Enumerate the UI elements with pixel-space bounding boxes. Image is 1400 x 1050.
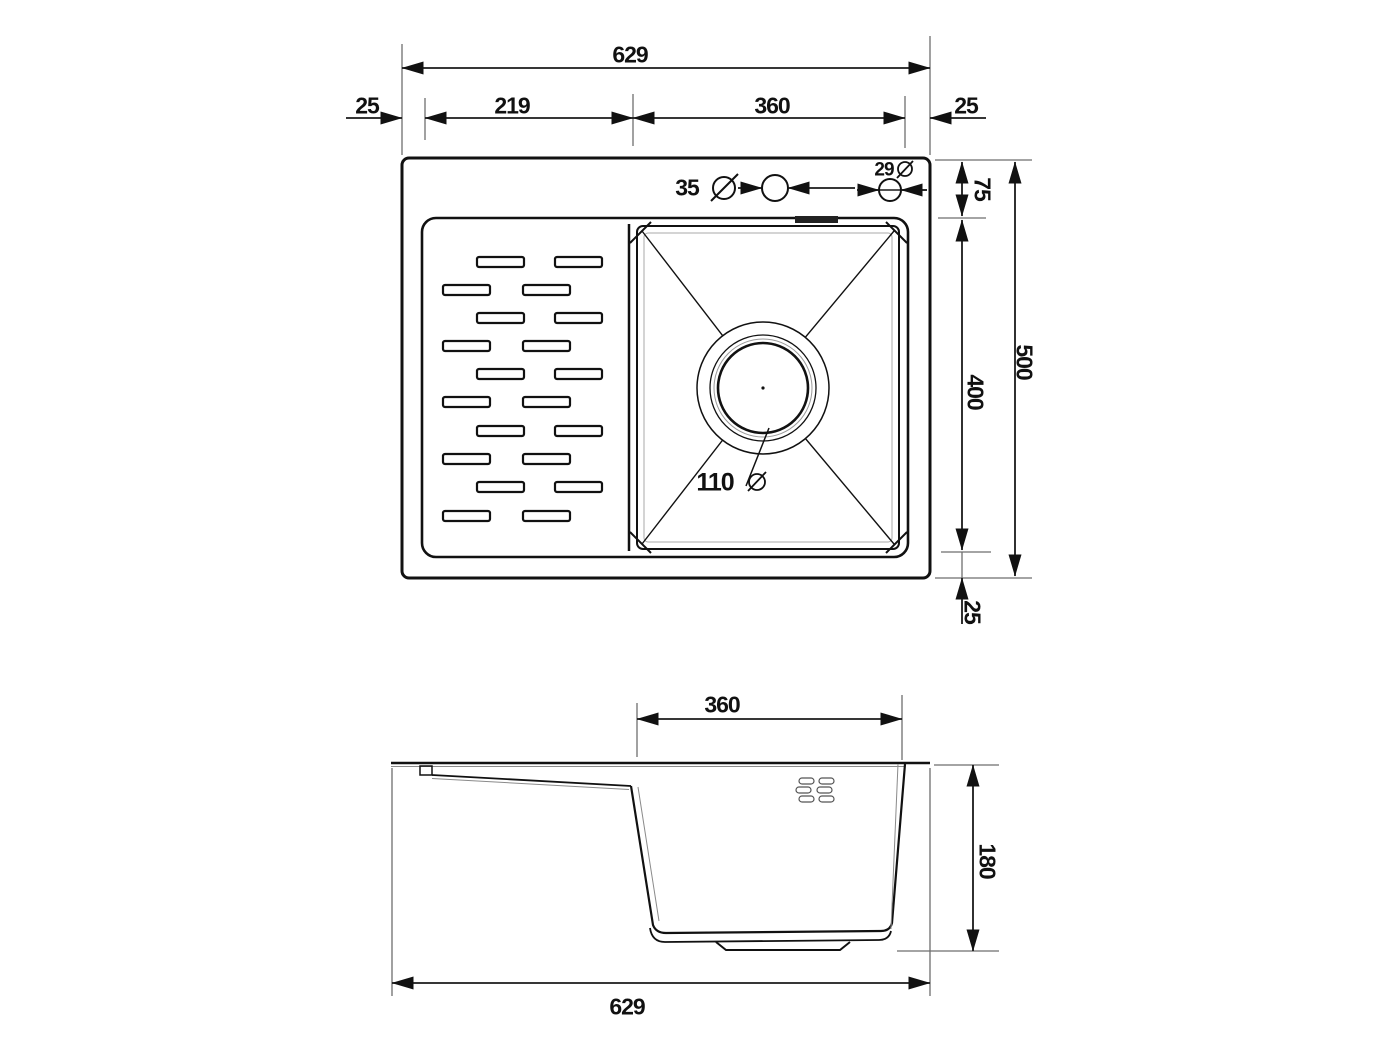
diameter-icon [711,174,738,201]
drain-center-dot [761,386,764,389]
dim-label-35: 35 [675,177,699,200]
bowl-profile-wall-inner-lines [638,764,898,929]
dim-label-25-left: 25 [355,95,379,118]
dim-label-180: 180 [976,843,999,878]
diameter-icon [897,161,913,178]
side-view [391,695,999,996]
dim-label-360-top: 360 [754,95,789,118]
dim-label-25-bottom: 25 [961,600,984,624]
drainboard-slots [443,257,602,521]
faucet-hole-callout [711,174,855,201]
top-view [346,36,1032,624]
bowl-corner-chamfer [630,222,651,243]
dim-label-29: 29 [874,161,893,180]
dim-label-400: 400 [964,374,987,409]
bowl [629,216,907,553]
bowl-corner-chamfer [886,222,907,243]
front-lip [420,766,432,775]
drain-bump [716,942,850,950]
bowl-profile-inner [631,764,905,933]
sink-inner-edge [422,218,908,557]
dim-label-75: 75 [971,177,994,201]
overflow-slot [795,216,838,223]
dim-label-219: 219 [494,95,529,118]
sink-profile [391,763,930,950]
sink-technical-drawing: 629 25 219 360 25 35 29 110 75 400 500 2… [0,0,1400,1050]
dim-label-25-right: 25 [954,95,978,118]
dim-label-500: 500 [1013,344,1036,379]
dim-label-629-bottom: 629 [609,996,644,1019]
bowl-corner-chamfer [630,532,651,553]
drain [697,322,829,454]
bowl-corner-chamfer [886,532,907,553]
bowl-profile-outer-bottom [650,928,891,942]
faucet-hole [762,175,788,201]
dim-label-629-top: 629 [612,44,647,67]
drawing-linework [0,0,1400,1050]
side-view-dimension-lines [392,719,973,983]
overflow-holes-section [796,778,834,802]
side-view-extension-lines [392,695,999,996]
dim-label-110: 110 [696,471,733,496]
dim-label-360-side: 360 [704,694,739,717]
